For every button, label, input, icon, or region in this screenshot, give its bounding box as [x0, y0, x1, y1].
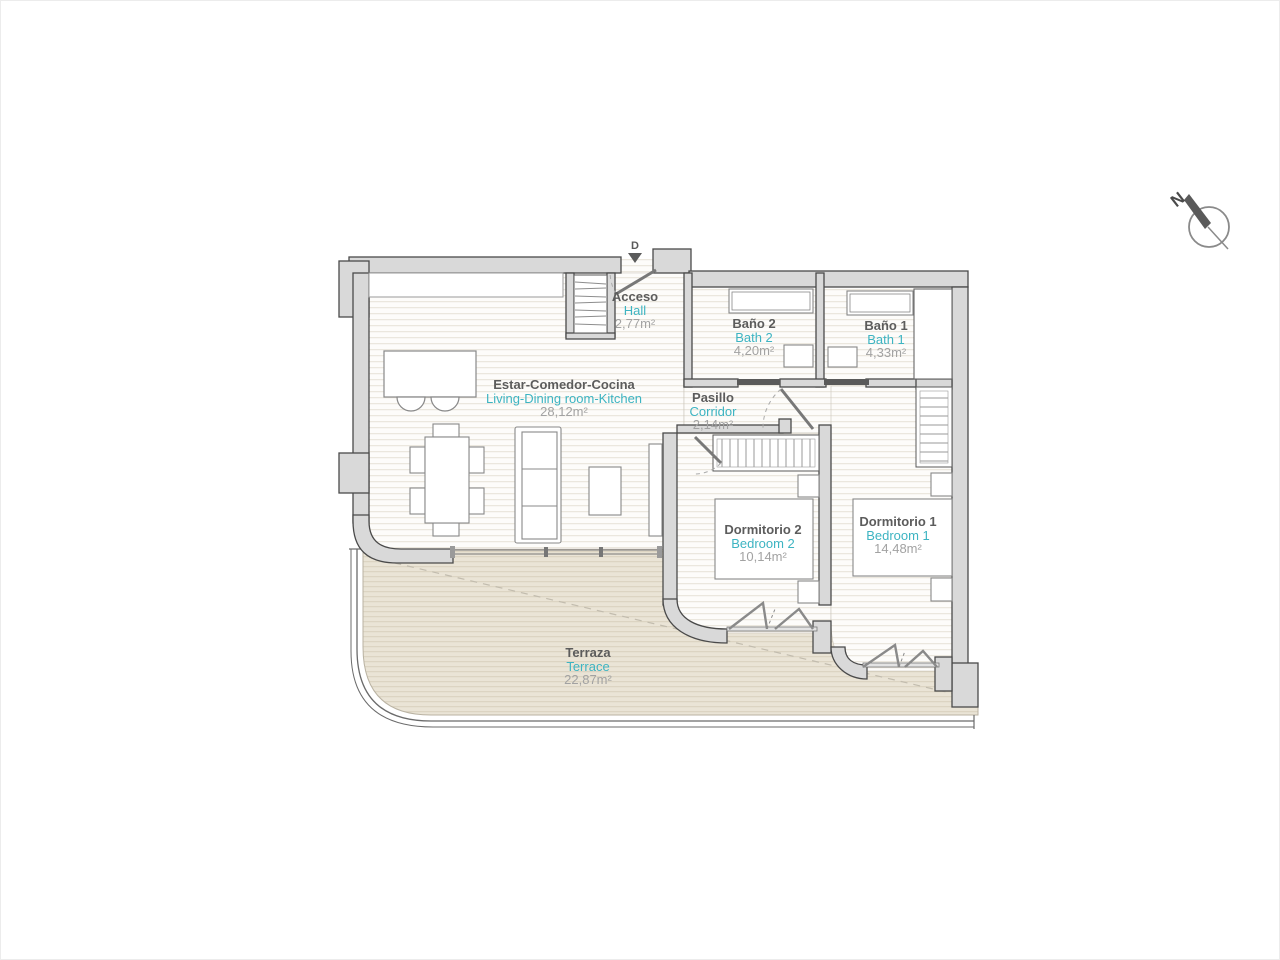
shower-enclosure — [914, 289, 952, 379]
washbasin — [784, 345, 813, 367]
nightstand — [798, 581, 819, 603]
compass-north-label: N — [1167, 188, 1188, 211]
sofa — [515, 427, 561, 543]
nightstand — [798, 475, 819, 497]
bath1-sliding-door — [824, 379, 869, 385]
kitchen-counter — [369, 273, 563, 297]
washbasin — [828, 347, 857, 367]
floor-plan-canvas: D N Acceso Hall 2,77m² Estar-Comedor-Coc… — [0, 0, 1280, 960]
nightstand — [931, 578, 952, 601]
floor-plan-drawing: D N — [1, 1, 1280, 960]
shower-tray — [847, 291, 913, 315]
compass-icon: N — [1167, 188, 1229, 249]
shower-tray — [729, 289, 813, 313]
bedroom2-wardrobe — [713, 435, 819, 471]
nightstand — [931, 473, 952, 496]
bath2-sliding-door — [737, 379, 780, 385]
hall-closet — [574, 275, 607, 333]
bedroom1-wardrobe — [916, 387, 952, 467]
svg-text:D: D — [631, 240, 639, 252]
coffee-table — [589, 467, 621, 515]
tv-cabinet — [649, 444, 662, 536]
